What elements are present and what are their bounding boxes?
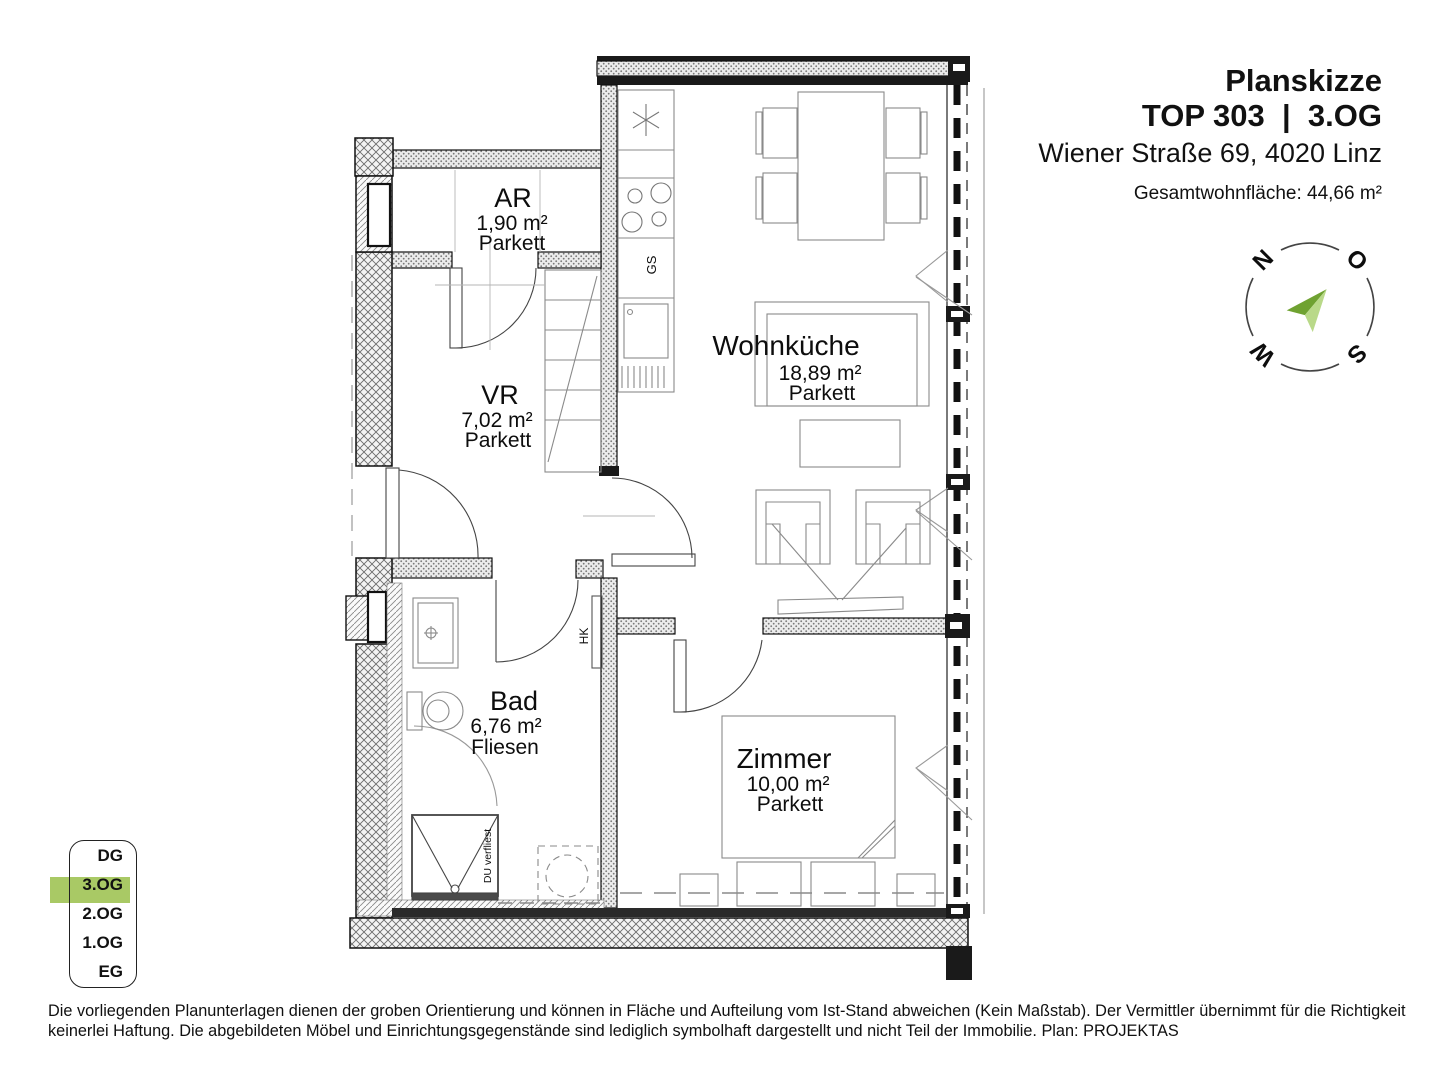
washbasin [413, 598, 458, 668]
floor-selector-box: DG 3.OG 2.OG 1.OG EG [69, 840, 137, 988]
floor-item-eg[interactable]: EG [70, 958, 136, 987]
armchair-right [856, 490, 930, 564]
door-swing-vr [612, 478, 692, 558]
room-wk-name: Wohnküche [712, 330, 859, 361]
wardrobe [545, 270, 601, 472]
dining-table [756, 92, 927, 240]
door-leaf-vr [612, 554, 695, 566]
floor-item-dg[interactable]: DG [70, 841, 136, 870]
room-zi-name: Zimmer [737, 743, 832, 774]
room-wk-floor: Parkett [789, 382, 856, 405]
room-bad-floor: Fliesen [471, 736, 539, 759]
washing-machine [538, 846, 598, 904]
disclaimer: Die vorliegenden Planunterlagen dienen d… [48, 1002, 1408, 1042]
bottom-inner-band [392, 908, 968, 917]
floor-item-2og[interactable]: 2.OG [70, 899, 136, 928]
room-labels: AR 1,90 m² Parkett VR 7,02 m² Parkett Wo… [461, 183, 861, 883]
toilet [407, 692, 463, 730]
reference-lines [352, 170, 944, 903]
door-leaf-entrance [386, 468, 399, 558]
corner-block [946, 946, 972, 980]
window-opening-symbols [916, 250, 972, 820]
door-swing-entrance [399, 470, 478, 558]
disclaimer-line2: keinerlei Haftung. Die abgebildeten Möbe… [48, 1022, 1408, 1042]
label-dishwasher: GS [644, 255, 659, 274]
room-vr-floor: Parkett [465, 429, 532, 452]
label-shower: DU verfliest [482, 829, 494, 883]
room-bad-area: 6,76 m² [470, 715, 541, 738]
compass-o: O [1340, 244, 1372, 276]
room-bad-name: Bad [490, 686, 538, 716]
door-leaf-zimmer [674, 640, 686, 712]
door-swing-bad [496, 580, 578, 662]
page-title: Planskizze [1038, 64, 1382, 99]
north-arrow-icon [1287, 278, 1340, 332]
doors [386, 268, 762, 806]
fridge-icon [622, 304, 668, 388]
title-block: Planskizze TOP 303 | 3.OG Wiener Straße … [1038, 64, 1382, 205]
floor-item-3og[interactable]: 3.OG [70, 870, 136, 899]
room-ar-name: AR [494, 183, 532, 213]
kitchen-unit [618, 90, 674, 392]
planskizze-page: AR 1,90 m² Parkett VR 7,02 m² Parkett Wo… [0, 0, 1440, 1080]
door-swing-ar [456, 268, 536, 348]
disclaimer-line1: Die vorliegenden Planunterlagen dienen d… [48, 1002, 1408, 1022]
cooktop-icon [622, 183, 671, 232]
room-vr-name: VR [481, 380, 519, 410]
tv-board [772, 524, 906, 614]
coffee-table [800, 420, 900, 467]
compass-s: S [1341, 338, 1371, 368]
floor-selector: DG 3.OG 2.OG 1.OG EG [48, 838, 143, 990]
unit-title: TOP 303 | 3.OG [1038, 99, 1382, 134]
floor-item-1og[interactable]: 1.OG [70, 929, 136, 958]
compass: N O S W [1235, 228, 1395, 388]
door-swing-zimmer [680, 640, 762, 712]
room-zi-floor: Parkett [757, 793, 824, 816]
label-radiator: HK [577, 628, 591, 645]
door-leaf-ar [450, 268, 462, 348]
window-band [916, 56, 984, 918]
compass-w: W [1246, 336, 1281, 371]
compass-n: N [1248, 245, 1279, 276]
walls [392, 56, 968, 908]
armchair-left [756, 490, 830, 564]
total-area: Gesamtwohnfläche: 44,66 m² [1038, 183, 1382, 205]
room-ar-floor: Parkett [479, 232, 546, 255]
address: Wiener Straße 69, 4020 Linz [1038, 138, 1382, 169]
sink-icon [633, 104, 659, 136]
floor-plan: AR 1,90 m² Parkett VR 7,02 m² Parkett Wo… [330, 0, 1000, 1000]
